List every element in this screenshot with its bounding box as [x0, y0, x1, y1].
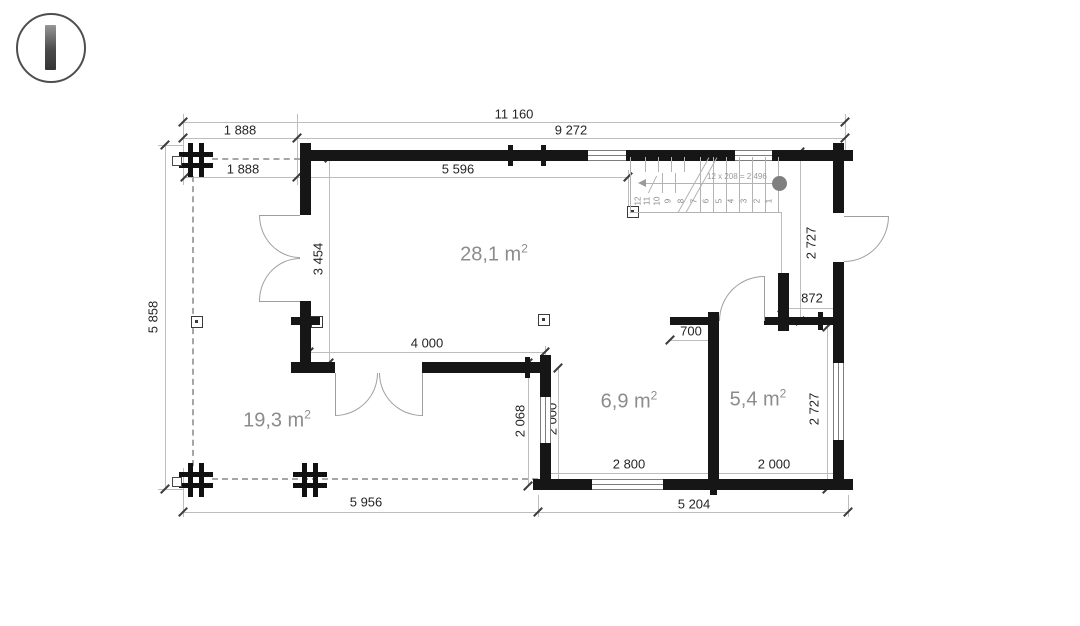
- log-cross-mark: [291, 317, 320, 325]
- door-leaf: [764, 276, 765, 321]
- post-anchor-square: [172, 477, 182, 487]
- dim-line-bottom-rooms: [545, 473, 838, 474]
- log-cross-mark: [508, 145, 513, 166]
- dim-line-vestibule: [670, 340, 713, 341]
- dim-line-bottom-right: [538, 512, 848, 513]
- stair-edge: [630, 212, 781, 213]
- purlin-marker: [191, 316, 203, 328]
- door-leaf: [422, 373, 423, 416]
- log-post: [182, 466, 210, 494]
- room-area-sup: 2: [780, 387, 787, 401]
- stair-step-number: 10: [653, 197, 662, 206]
- wall-right-lower: [833, 440, 844, 490]
- wall-bottom-b: [663, 479, 844, 490]
- wall-living-bottom-b: [422, 362, 550, 373]
- window-top-2: [735, 150, 772, 161]
- room-area-text: 6,9 m: [601, 390, 651, 412]
- wall-bottom-a: [533, 479, 592, 490]
- stair-winder-mark: [648, 176, 657, 194]
- dim-label-terrace-top2: 1 888: [227, 162, 260, 177]
- window-top-1: [588, 150, 626, 161]
- stair-step-number: 11: [643, 197, 652, 205]
- stair-tread-upper: [645, 157, 646, 172]
- stair-step-number: 9: [664, 199, 673, 203]
- dim-label-terrace-top: 1 888: [224, 123, 257, 138]
- door-swing-arc: [259, 258, 300, 301]
- door-swing-arc: [844, 216, 889, 262]
- dim-label-vestibule: 700: [680, 324, 702, 339]
- stair-step-number: 3: [740, 199, 749, 203]
- door-swing-arc: [379, 373, 422, 416]
- dim-label-total-width: 11 160: [495, 107, 534, 122]
- window-right: [833, 363, 844, 440]
- log-cross-mark: [844, 150, 853, 161]
- stair-step-number: 7: [690, 199, 699, 203]
- terrace-dashed-edge-bottom: [212, 478, 538, 480]
- stair-run-label: 12 x 208 = 2 496: [707, 172, 767, 181]
- room-label-terrace: 19,3 m2: [243, 408, 311, 433]
- room-label-living: 28,1 m2: [460, 242, 528, 267]
- stair-edge: [630, 157, 631, 212]
- dim-label-terrace-bottom: 5 956: [350, 495, 383, 510]
- window-bottom: [592, 479, 663, 490]
- wall-hall-left-upper: [540, 355, 551, 397]
- wall-right-upper: [833, 143, 844, 213]
- stair-start-dot: [772, 176, 787, 191]
- stair-step-number: 8: [677, 199, 686, 203]
- wall-right-mid: [833, 262, 844, 363]
- wall-interior-horiz-right: [764, 317, 844, 325]
- stair-walk-line: [646, 183, 779, 184]
- dim-label-room-b-width: 2 000: [758, 457, 791, 472]
- log-cross-mark: [844, 479, 853, 490]
- stair-step-number: 5: [715, 199, 724, 203]
- door-leaf: [259, 301, 300, 302]
- wall-top-b: [626, 150, 735, 161]
- dim-label-left-door-span: 3 454: [311, 243, 326, 276]
- log-cross-mark: [818, 312, 823, 330]
- dim-line-left-door-span: [329, 158, 330, 363]
- floor-plan-canvas: 11 160 1 888 9 272 1 888 5 596 5 858 3 4…: [0, 0, 1080, 626]
- room-area-sup: 2: [651, 389, 658, 403]
- wall-entry-stub: [778, 273, 789, 331]
- dim-label-living-door-span: 4 000: [411, 336, 444, 351]
- stair-tread-upper: [658, 157, 659, 172]
- stair-walk-arrow: [638, 179, 646, 187]
- dim-line-front-wall: [185, 177, 628, 178]
- room-label-bedroom: 5,4 m2: [730, 387, 787, 412]
- log-cross-mark: [525, 357, 530, 378]
- window-hall-left: [540, 397, 551, 443]
- dim-label-side-height: 5 858: [146, 301, 161, 334]
- room-area-text: 28,1 m: [460, 243, 521, 265]
- stair-step-number: 6: [702, 199, 711, 203]
- stair-tread: [752, 157, 753, 212]
- brand-logo: [16, 13, 86, 83]
- wall-left-lower: [300, 301, 311, 368]
- door-swing-arc: [719, 276, 764, 321]
- dim-line-total-width: [183, 122, 845, 123]
- stair-break-line: [678, 157, 710, 212]
- terrace-dashed-edge-top: [212, 158, 300, 160]
- door-swing-arc: [259, 215, 300, 258]
- wall-interior-vertical: [708, 312, 719, 490]
- dim-label-bottom-right: 5 204: [678, 497, 711, 512]
- log-cross-mark: [541, 145, 546, 166]
- extension-line: [538, 495, 539, 517]
- stair-step-number: 12: [634, 197, 643, 206]
- dim-label-entry-width: 872: [801, 291, 823, 306]
- dim-line-terrace-bottom: [183, 512, 538, 513]
- post-anchor-square: [172, 156, 182, 166]
- dim-label-building-width: 9 272: [555, 123, 588, 138]
- dim-line-side-height: [165, 145, 166, 489]
- dim-line-top-split: [183, 138, 845, 139]
- room-area-sup: 2: [304, 408, 311, 422]
- dim-line-right-lower: [827, 327, 828, 489]
- dim-label-right-upper: 2 727: [804, 227, 819, 260]
- wall-top-a: [311, 150, 588, 161]
- stair-step-number: 4: [727, 199, 736, 203]
- stair-step-number: 1: [765, 199, 774, 203]
- room-area-text: 5,4 m: [730, 388, 780, 410]
- room-area-sup: 2: [521, 242, 528, 256]
- purlin-marker: [538, 314, 550, 326]
- stair-tread: [765, 157, 766, 212]
- stair-tread-upper: [684, 157, 685, 172]
- wall-living-bottom-a: [291, 362, 335, 373]
- stair-tread: [739, 157, 740, 212]
- dim-label-room-a-width: 2 800: [613, 457, 646, 472]
- room-area-text: 19,3 m: [243, 409, 304, 431]
- log-post: [182, 146, 210, 174]
- dim-label-right-lower: 2 727: [807, 393, 822, 426]
- dim-line-hall-span: [528, 363, 529, 486]
- door-swing-arc: [335, 373, 378, 416]
- dim-label-front-wall: 5 596: [442, 162, 475, 177]
- brand-logo-bar: [45, 25, 56, 70]
- log-post: [296, 466, 324, 494]
- room-label-hall: 6,9 m2: [601, 389, 658, 414]
- wall-interior-horiz-left: [670, 317, 719, 325]
- extension-line: [848, 495, 849, 517]
- dim-line-living-door-span: [309, 352, 545, 353]
- stair-tread: [726, 157, 727, 212]
- stair-tread-upper: [671, 157, 672, 172]
- dim-line-entry-width: [782, 308, 838, 309]
- dim-label-hall-span: 2 068: [513, 405, 528, 438]
- stair-step-number: 2: [753, 199, 762, 203]
- wall-left-upper: [300, 143, 311, 215]
